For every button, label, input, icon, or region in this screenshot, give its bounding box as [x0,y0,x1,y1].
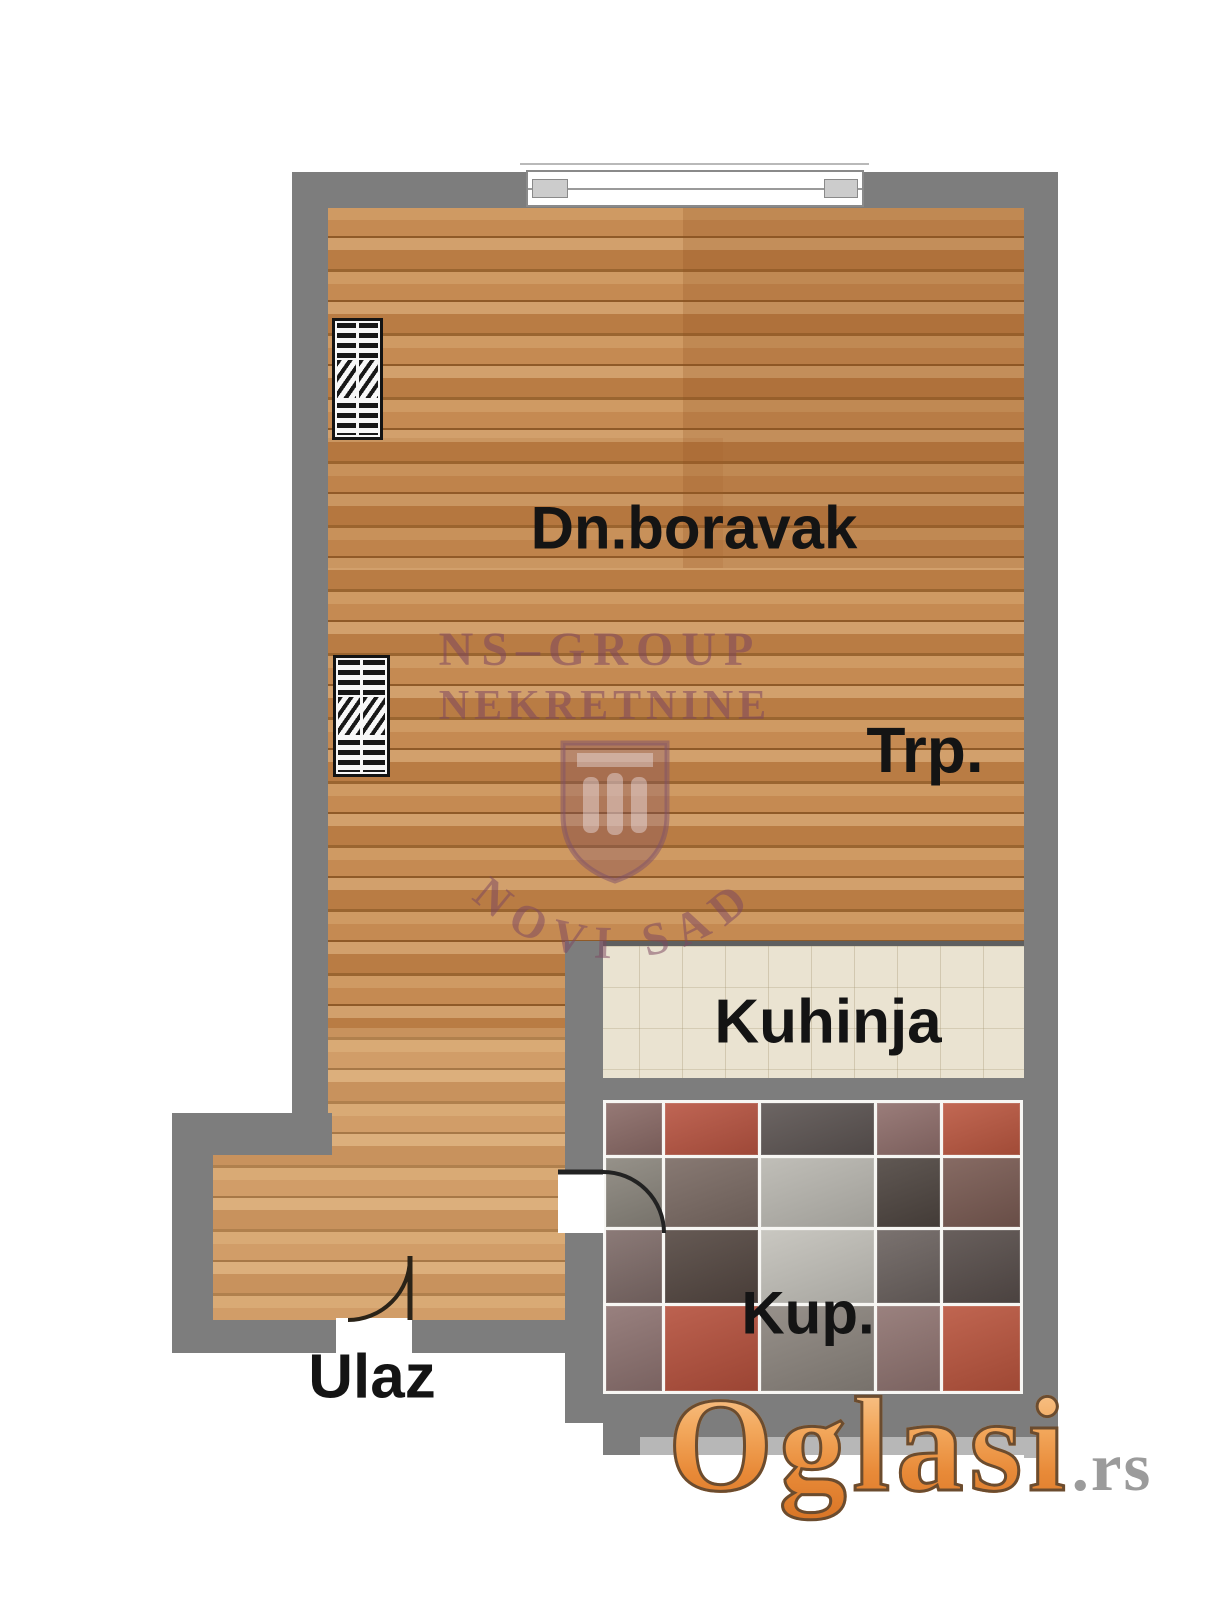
wall-hall-left [172,1113,213,1353]
bathroom-door-opening [558,1170,604,1233]
bath-tile [943,1230,1020,1303]
window-pane-line [528,188,862,190]
oglasi-logo-tld: .rs [1072,1429,1153,1505]
bath-tile [606,1230,662,1303]
radiator-fins [363,660,385,772]
bath-tile [606,1103,662,1155]
wall-left [292,172,328,1113]
radiator-fins [337,323,356,435]
window-end-block [824,179,858,198]
entrance-label: Ulaz [308,1342,435,1413]
room-label-bathroom: Kup. [741,1279,874,1348]
bath-tile [877,1158,940,1227]
room-label-living: Dn.boravak [531,494,858,563]
wall-right [1024,172,1058,1458]
bath-tile [761,1158,874,1227]
oglasi-logo-text: Oglasi [668,1371,1072,1520]
wall-notch [565,1423,603,1455]
svg-text:NOVI SAD: NOVI SAD [464,867,765,969]
bathroom-tiles [603,1100,1023,1394]
oglasi-logo: Oglasi.rs [668,1378,1152,1513]
bath-tile [665,1158,758,1227]
bath-tile [943,1158,1020,1227]
bath-tile [943,1103,1020,1155]
bath-tile [877,1230,940,1303]
radiator-fins [359,323,378,435]
bath-tile [877,1103,940,1155]
window [526,170,864,207]
bath-tile [606,1306,662,1391]
window-sill-line [520,163,869,165]
watermark-arc-label: NOVI SAD [464,867,765,969]
watermark-line1: NS–GROUP [439,622,762,677]
radiator-icon [333,655,390,777]
window-end-block [532,179,568,198]
bath-tile [665,1103,758,1155]
bath-tile [761,1103,874,1155]
radiator-fins [338,660,360,772]
watermark-line2: NEKRETNINE [439,682,771,730]
room-label-kitchen: Kuhinja [714,987,941,1058]
bath-tile [606,1158,662,1227]
radiator-icon [332,318,383,440]
outside-area [0,0,292,1113]
room-label-dining: Trp. [866,713,983,787]
floor-plan-page: NS–GROUP NEKRETNINE NOVI SAD Dn.boravak … [0,0,1229,1600]
